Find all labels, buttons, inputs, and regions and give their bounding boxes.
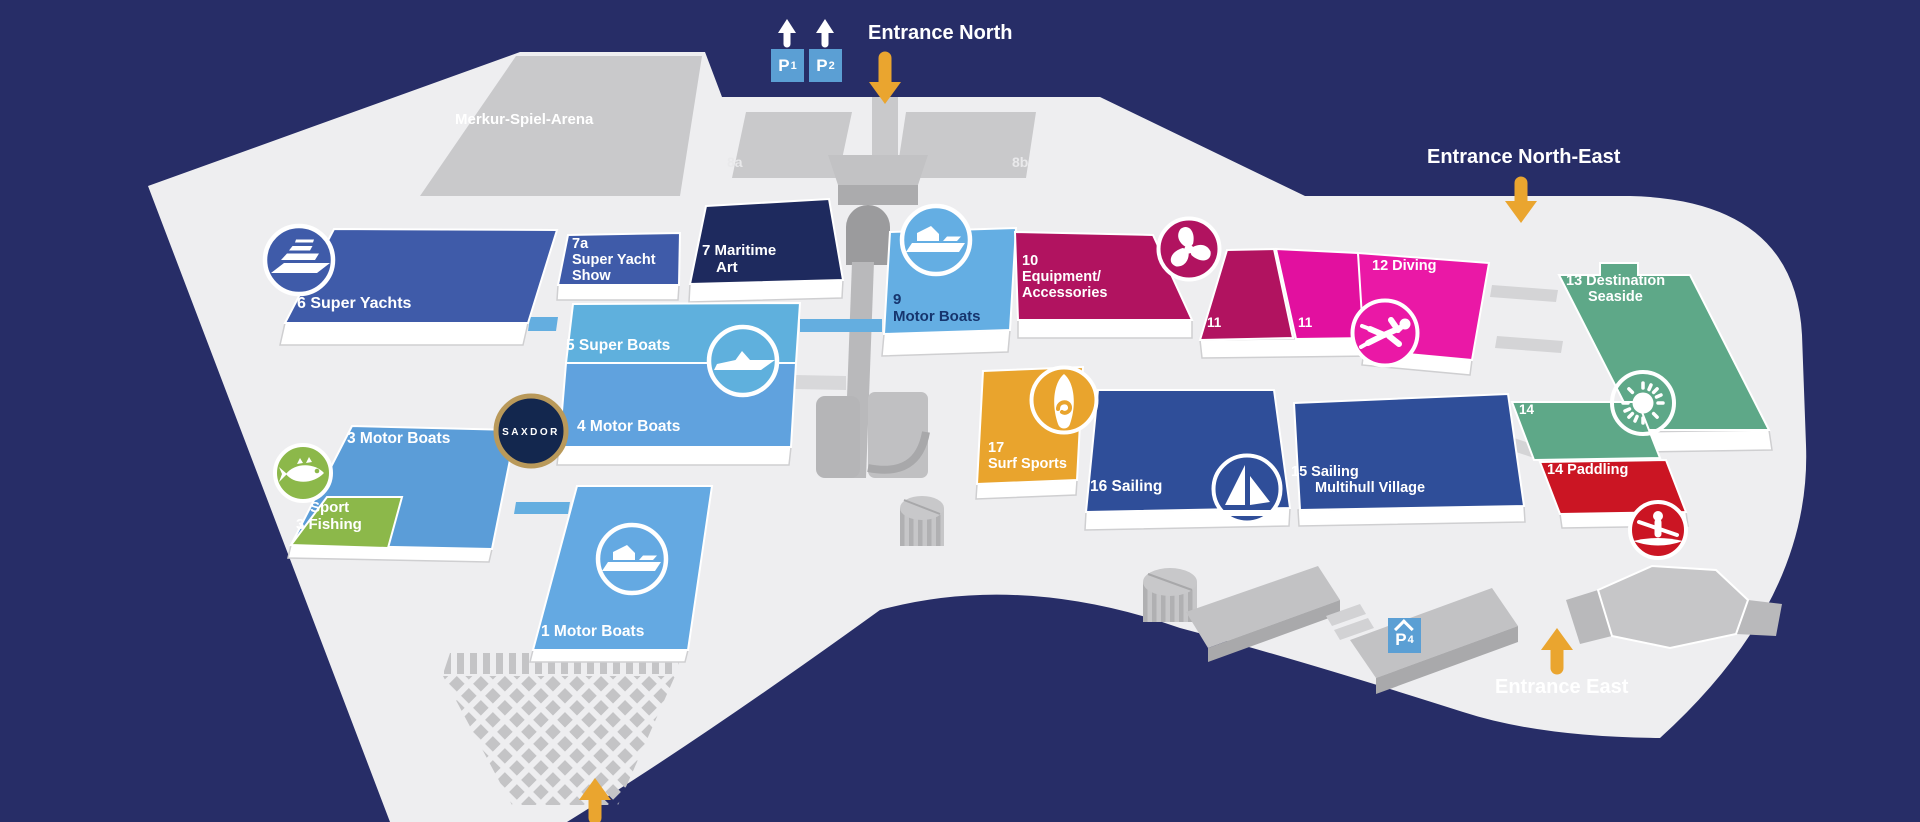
entrance-north-east-label: Entrance North-East: [1427, 146, 1620, 169]
hall-8a-label: 8a: [727, 155, 743, 171]
blue-link-6-5: [528, 317, 558, 331]
sailboat-icon: [1210, 452, 1284, 526]
parking-p1-arrow: [778, 19, 796, 44]
hall-14-paddling-label: 14 Paddling: [1547, 462, 1628, 478]
hall-11b-label: 11: [1298, 315, 1312, 330]
hall-8b-label: 8b: [1012, 155, 1028, 171]
hall-5-label: 5 Super Boats: [566, 337, 670, 354]
parking-p1-badge: P1: [771, 49, 804, 82]
hall-13-label: 13 Destination Seaside: [1566, 273, 1665, 305]
hall-6-base: [280, 323, 528, 345]
parking-p4-badge: P4: [1388, 618, 1421, 653]
propeller-icon: [1155, 215, 1223, 283]
yacht-icon: [261, 222, 337, 298]
hall-4-label: 4 Motor Boats: [577, 418, 680, 435]
kayak-icon: [1627, 499, 1689, 561]
north-corridor-stub: [872, 97, 898, 160]
hall-6-label: 6 Super Yachts: [297, 295, 411, 313]
motorboat-icon: [594, 521, 670, 597]
hall-9-label: 9 Motor Boats: [893, 292, 981, 326]
arena-label: Merkur-Spiel-Arena: [455, 112, 593, 129]
hall-12-label: 12 Diving: [1372, 258, 1436, 274]
saxdor-logo: SAXDOR: [492, 392, 570, 470]
speedboat-icon: [705, 323, 781, 399]
hall-7a-base: [557, 285, 679, 300]
parking-p2-badge: P2: [809, 49, 842, 82]
tunnel-arch: [846, 205, 890, 265]
diver-icon: [1349, 297, 1421, 369]
parking-p2-arrow: [816, 19, 834, 44]
hall-14-label: 14: [1519, 402, 1534, 417]
entrance-east-label: Entrance East: [1495, 676, 1628, 699]
tower-a: [816, 396, 860, 478]
hall-16-label: 16 Sailing: [1090, 478, 1162, 495]
hall-11-base: [1200, 338, 1374, 358]
hall-7a-label: 7a Super Yacht Show: [572, 236, 656, 285]
fish-icon: [272, 442, 334, 504]
hall-4-base: [557, 447, 791, 465]
hall-sport-fishing-label: Sport 3 Fishing: [296, 500, 362, 534]
hall-17-label: 17 Surf Sports: [988, 440, 1067, 472]
hall-15-label: 15 Sailing Multihull Village: [1291, 464, 1425, 496]
blue-link-5-9: [800, 319, 882, 332]
hall-3-label: 3 Motor Boats: [347, 430, 450, 447]
hall-10-label: 10 Equipment/ Accessories: [1022, 253, 1107, 302]
blue-link-3-1: [514, 502, 570, 514]
sun-icon: [1609, 369, 1677, 437]
entrance-north-label: Entrance North: [868, 22, 1012, 45]
hall-1-base: [530, 650, 688, 662]
motorboat-icon: [898, 202, 974, 278]
hall-1-label: 1 Motor Boats: [541, 623, 644, 640]
tunnel-roof: [828, 155, 928, 185]
boat-show-venue-map: SAXDOR Merkur-Spiel-Arena 8a 8b 6 Super …: [0, 0, 1920, 822]
hall-11a-label: 11: [1207, 315, 1221, 330]
hall-10-base: [1018, 320, 1192, 338]
surfboard-icon: [1028, 364, 1100, 436]
saxdor-logo-text: SAXDOR: [502, 427, 560, 438]
hall-7-label: 7 Maritime Art: [702, 243, 776, 277]
